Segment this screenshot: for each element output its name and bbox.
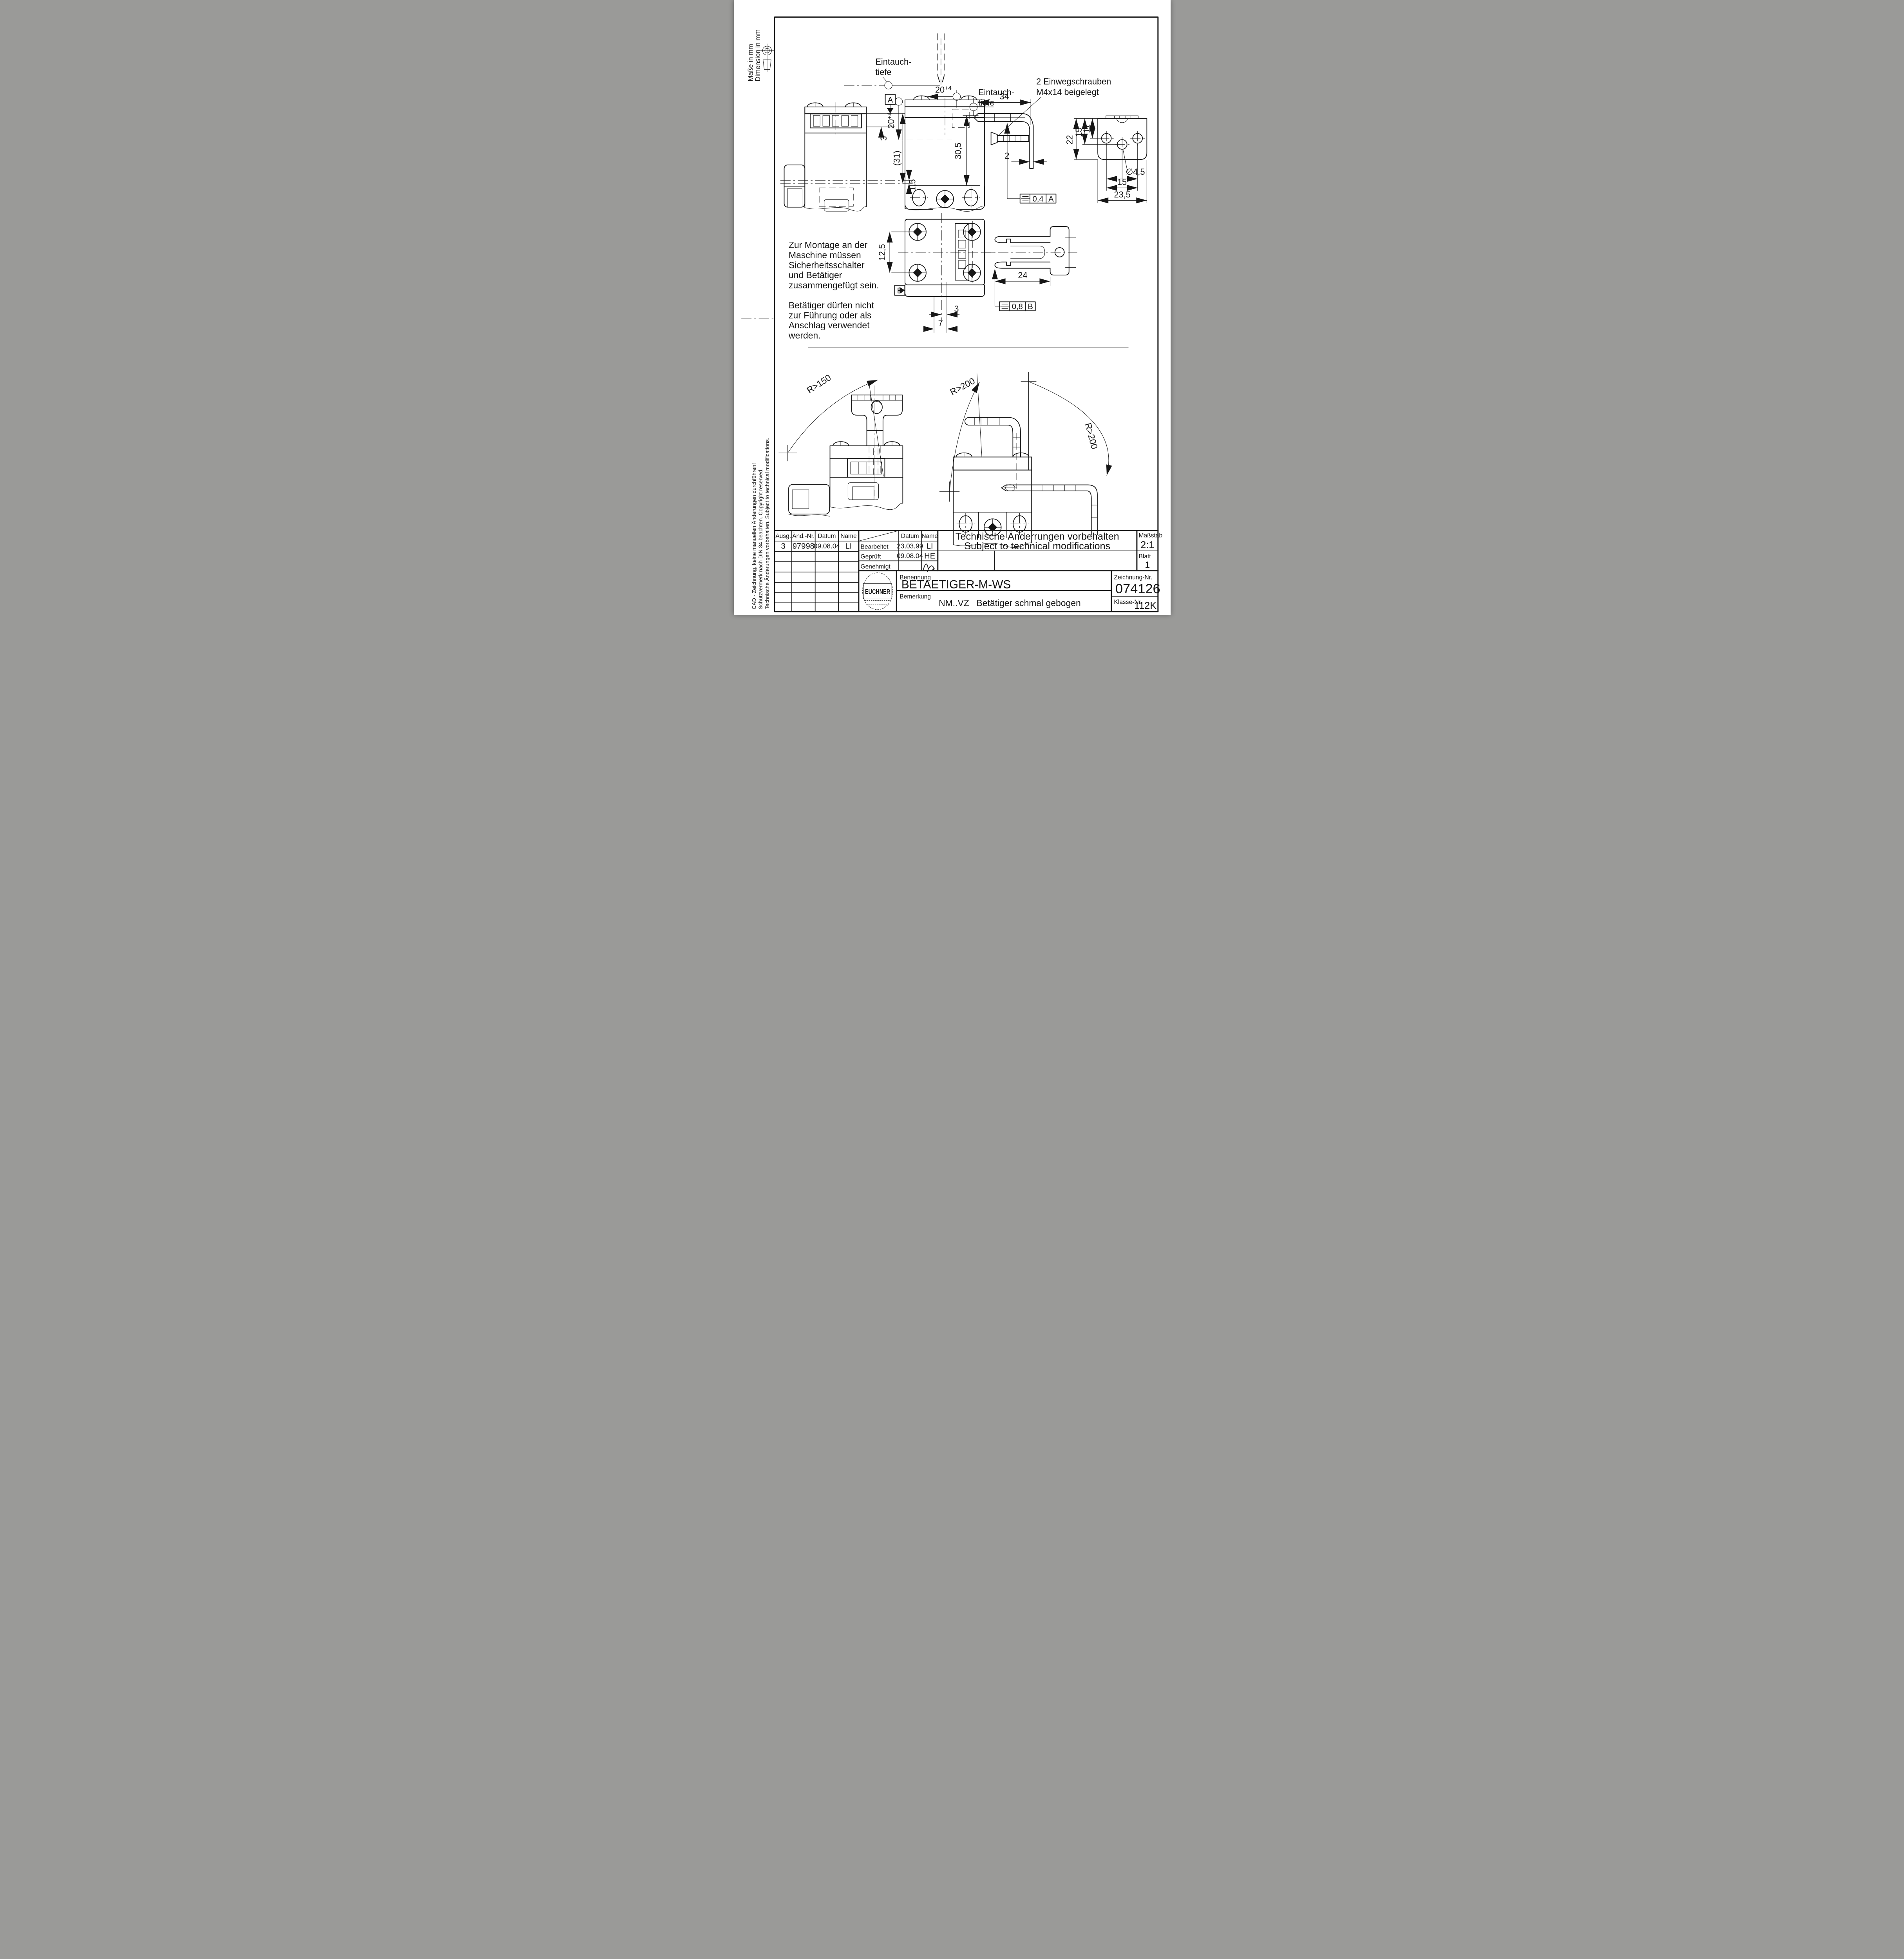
screws-note-line2: M4x14 beigelegt <box>1036 87 1099 97</box>
notice-de: Technische Änderrungen vorbehalten <box>955 531 1119 542</box>
dim-30-5: 30,5 <box>953 143 963 159</box>
rev-name-value: LI <box>845 542 852 550</box>
units-label-en: Dimension in mm <box>754 29 762 81</box>
geprueft-name: HE <box>924 552 935 561</box>
note-usage-4: werden. <box>788 330 821 340</box>
symmetry-symbol-icon <box>1000 304 1009 308</box>
radius-r150-label: R>150 <box>805 372 833 395</box>
dim-20a-value: 20 <box>935 85 944 94</box>
massstab-value: 2:1 <box>1140 540 1154 550</box>
tolerance-a-datum: A <box>1048 195 1054 203</box>
radius-r150: R>150 <box>778 372 878 461</box>
benennung-value: BETAETIGER-M-WS <box>901 578 1010 591</box>
dim-22: 22 <box>1064 135 1074 145</box>
bearbeitet-name: LI <box>926 542 933 550</box>
eintauchtiefe-callout-1: Eintauch- tiefe <box>844 34 944 89</box>
screw-leader <box>999 97 1041 135</box>
approval-header-datum: Datum <box>901 533 919 540</box>
dim-20-top-text: 20+4 <box>935 85 951 94</box>
bemerkung-label: Bemerkung <box>900 594 931 600</box>
blatt-value: 1 <box>1145 560 1150 570</box>
dim-20b-tol: +4 <box>886 112 893 119</box>
note-usage-2: zur Führung oder als <box>789 310 872 320</box>
tolerance-frame-b: 0,8 B <box>992 269 1035 311</box>
radius-view-straight: R>150 <box>778 372 903 516</box>
one-way-screw <box>991 132 1028 145</box>
rev-datum-value: 09.08.04 <box>814 542 840 550</box>
note-assembly-2: Maschine müssen <box>789 250 861 260</box>
bearbeitet-label: Bearbeitet <box>860 543 889 550</box>
dim-3-side: 3 <box>879 136 889 141</box>
note-assembly-3: Sicherheitsschalter <box>789 260 865 270</box>
dim-15-horizontal: 15 <box>1117 177 1126 187</box>
mounting-notes: Zur Montage an der Maschine müssen Siche… <box>788 240 879 340</box>
tolerance-frame-a: 0,4 A <box>1004 123 1056 203</box>
radius-r200-b: R>200 <box>1029 382 1112 476</box>
rev-ausg-value: 3 <box>781 542 785 550</box>
dim-31: (31) <box>892 150 901 166</box>
break-line <box>905 206 985 211</box>
margin-annotations: Maße in mm Dimension in mm CAD - Zeichnu… <box>741 29 774 609</box>
klasse-value: 112K <box>1134 600 1157 611</box>
depth-reference-circle <box>885 81 892 89</box>
screws-note-line1: 2 Einwegschrauben <box>1036 77 1111 87</box>
tech-note: Technische Änderungen vorbehalten. Subje… <box>764 438 770 609</box>
din-note: Schutzvermerk nach DIN 34 beachten. Copy… <box>758 468 764 609</box>
tolerance-a-value: 0,4 <box>1032 195 1043 203</box>
dim-20a-tol: +4 <box>945 85 952 92</box>
break-line <box>830 503 903 509</box>
diagonal-divider <box>858 531 898 541</box>
switch-side-view: A 3 (31) 1,5 <box>780 94 917 211</box>
datum-a-label: A <box>887 96 893 105</box>
dim-1-5: 1,5 <box>907 179 917 191</box>
approval-header-name: Name <box>921 533 938 540</box>
title-block: Ausg. Änd.-Nr. Datum Name 3 97998 09.08.… <box>775 531 1162 612</box>
geprueft-label: Geprüft <box>860 554 881 560</box>
zeichnung-label: Zeichnung-Nr. <box>1114 574 1152 581</box>
cad-note: CAD - Zeichnung, keine manuellen Änderun… <box>751 463 757 609</box>
revision-table: Ausg. Änd.-Nr. Datum Name 3 97998 09.08.… <box>775 532 856 551</box>
dim-20b-value: 20 <box>886 119 896 129</box>
eintauchtiefe1-line2: tiefe <box>875 67 891 77</box>
note-assembly-1: Zur Montage an der <box>789 240 868 250</box>
geprueft-date: 09.08.04 <box>897 552 923 559</box>
dim-23-5: 23,5 <box>1114 190 1130 199</box>
datum-b-label: B <box>897 287 902 295</box>
dim-dia-4-5: ∅4,5 <box>1126 167 1145 177</box>
dim-7: 7 <box>938 318 943 328</box>
tolerance-b-datum: B <box>1028 302 1033 311</box>
dim-24: 24 <box>1018 270 1027 280</box>
note-usage-1: Betätiger dürfen nicht <box>789 300 874 310</box>
blatt-label: Blatt <box>1138 553 1151 560</box>
second-bent-actuator <box>1001 485 1097 535</box>
break-line <box>805 206 866 211</box>
dim-11: 11 <box>1082 124 1091 133</box>
dim-20-side-text: 20+4 <box>886 112 896 129</box>
bemerkung-code: NM..VZ <box>939 598 969 608</box>
note-usage-3: Anschlag verwendet <box>789 320 870 330</box>
note-assembly-4: und Betätiger <box>789 270 842 280</box>
radius-r200-a: R>200 <box>939 376 982 502</box>
dim-3-bottom: 3 <box>954 304 959 314</box>
rev-header-ausg: Ausg. <box>775 533 791 540</box>
actuator-top-view: 12,5 B 3 7 <box>877 213 994 333</box>
radius-r200-b-label: R>200 <box>1083 422 1100 450</box>
bemerkung-text: Betätiger schmal gebogen <box>976 598 1081 608</box>
radius-r200-a-label: R>200 <box>948 376 976 397</box>
tolerance-b-value: 0,8 <box>1012 302 1023 311</box>
rev-header-datum: Datum <box>818 533 836 540</box>
massstab-label: Maßstab <box>1138 532 1162 539</box>
radius-view-bent: R>200 R>200 <box>939 372 1112 548</box>
mounting-plate-view: 22 15 11 ∅4,5 15 23,5 <box>1064 116 1147 203</box>
actuator-blade-hidden <box>938 34 944 85</box>
drawing-sheet: Maße in mm Dimension in mm CAD - Zeichnu… <box>734 0 1171 615</box>
projection-method-icon <box>760 44 773 72</box>
zeichnung-value: 074126 <box>1115 581 1160 596</box>
euchner-logo-text: EUCHNER <box>865 588 890 596</box>
approval-table: Datum Name Bearbeitet 23.03.99 LI Geprüf… <box>860 533 938 572</box>
euchner-logo: EUCHNER <box>862 573 892 610</box>
bearbeitet-date: 23.03.99 <box>897 542 923 550</box>
rev-header-name: Name <box>840 533 857 540</box>
eintauchtiefe1-line1: Eintauch- <box>875 57 911 67</box>
note-assembly-5: zusammengefügt sein. <box>789 280 879 290</box>
dim-20-top: 20+4 <box>927 85 960 107</box>
genehmigt-label: Genehmigt <box>860 563 890 570</box>
notice-en: Subject to technical modifications <box>964 541 1110 552</box>
technical-drawing-canvas: Maße in mm Dimension in mm CAD - Zeichnu… <box>734 0 1171 615</box>
symmetry-symbol-icon <box>1021 196 1030 201</box>
actuator-fork-view: 24 0,8 B <box>981 226 1077 311</box>
rev-header-aend: Änd.-Nr. <box>792 532 814 540</box>
dim-34: 34 <box>999 91 1009 101</box>
rev-aend-value: 97998 <box>792 542 814 550</box>
dim-12-5: 12,5 <box>877 244 887 261</box>
units-label-de: Maße in mm <box>746 44 754 81</box>
